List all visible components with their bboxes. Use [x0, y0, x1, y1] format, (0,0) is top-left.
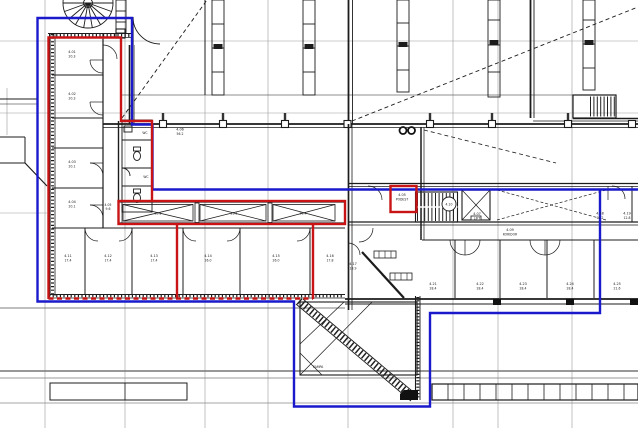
room-label: 25.1 — [231, 212, 238, 216]
room-label: 4.22 — [476, 282, 484, 286]
diagonal-room — [348, 228, 412, 298]
double-circle-symbol — [400, 127, 416, 134]
room-label: 4.12 — [104, 254, 112, 258]
upper-walls — [349, 0, 535, 124]
room-label: 4.07 — [473, 212, 481, 216]
room-label: 26.0 — [205, 259, 212, 263]
door-arc-stairhall — [133, 17, 160, 44]
room-label: 4.05 — [398, 193, 406, 197]
room-label: 4.23 — [519, 282, 527, 286]
room-label: 4.25 — [613, 282, 621, 286]
room-label: 18.9 — [350, 267, 357, 271]
room-label: 4.03 — [68, 160, 76, 164]
shaft-columns — [116, 0, 595, 97]
room-label: 15.2 — [597, 216, 604, 220]
room-label: 4.13 — [150, 254, 158, 258]
room-label: 28.4 — [520, 287, 527, 291]
room-label: 4.18 — [596, 212, 604, 216]
site-bands — [0, 99, 638, 400]
room-label: 4.16 — [326, 254, 334, 258]
room-label: 17.8 — [327, 259, 334, 263]
room-label: 20.1 — [69, 205, 76, 209]
room-label: 25.1 — [155, 212, 162, 216]
room-label: PODEST — [396, 198, 409, 202]
room-label: LIFT — [474, 217, 480, 221]
room-label: 20.3 — [69, 97, 76, 101]
room-label: 4.02 — [68, 92, 76, 96]
ramp-hatch — [299, 301, 414, 398]
section-diagonal-3 — [424, 130, 556, 163]
room-label: 56.2 — [177, 132, 184, 136]
room-label: 4.14 — [204, 254, 212, 258]
right-corridor-doors — [368, 186, 632, 222]
double-door-arcs — [450, 240, 560, 255]
room-label: 28.4 — [430, 287, 437, 291]
stairs-top-right — [533, 95, 638, 121]
room-label: 9.6 — [106, 207, 111, 211]
bottom-right-grating — [432, 384, 638, 400]
room-label: 17.4 — [151, 259, 158, 263]
upper-building — [116, 0, 638, 163]
room-labels: 4.01 20.3 4.02 20.3 4.03 20.1 4.04 20.1 … — [64, 50, 631, 369]
room-label: 26.0 — [273, 259, 280, 263]
ramp-block — [296, 296, 420, 401]
ramp-foot-block — [400, 390, 418, 400]
room-label: 20.3 — [69, 55, 76, 59]
room-label: 4.19 — [623, 212, 631, 216]
room-label: 4.17 — [349, 262, 357, 266]
bottom-room-doors — [85, 228, 310, 241]
floor-plan-canvas: 4.01 20.3 4.02 20.3 4.03 20.1 4.04 20.1 … — [0, 0, 638, 428]
room-label: 4.04 — [68, 200, 76, 204]
room-label: 4.11 — [64, 254, 72, 258]
room-label: WC — [143, 175, 148, 179]
left-outer-walls — [48, 33, 345, 298]
room-label: 4.24 — [566, 282, 574, 286]
room-label: 17.4 — [105, 259, 112, 263]
room-label: 21.6 — [614, 287, 621, 291]
room-label: 4.09 — [506, 228, 514, 232]
room-label: 4.21 — [429, 282, 437, 286]
room-label: 20.4 — [300, 212, 307, 216]
toilet-glyph — [134, 152, 141, 161]
grid-lines — [0, 0, 638, 428]
room-label: KORIDOR — [503, 233, 518, 237]
corridor-dashed-x — [497, 190, 606, 220]
room-label: 20.1 — [69, 165, 76, 169]
room-label: 4.15 — [272, 254, 280, 258]
room-label: WC — [142, 131, 147, 135]
room-label: 17.4 — [65, 259, 72, 263]
section-diagonal-1 — [122, 0, 207, 118]
floor-plan-svg: 4.01 20.3 4.02 20.3 4.03 20.1 4.04 20.1 … — [0, 0, 638, 428]
room-label: 4.10 — [446, 203, 453, 207]
pillar-stubs — [163, 113, 568, 120]
right-wing — [345, 124, 638, 310]
room-label: 28.4 — [477, 287, 484, 291]
room-label: 4.01 — [68, 50, 76, 54]
main-south-wall — [103, 113, 638, 128]
ramp-label: RAMPA — [313, 365, 324, 369]
room-label: 4.06 — [176, 128, 184, 132]
room-label: 12.8 — [624, 216, 631, 220]
left-wing — [48, 33, 345, 298]
room-label: 28.4 — [567, 287, 574, 291]
